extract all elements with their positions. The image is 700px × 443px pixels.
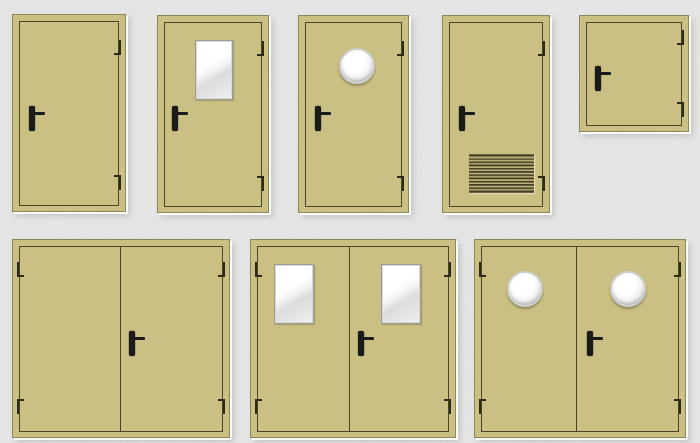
ventilation-grille: [469, 154, 534, 193]
door-hinge: [543, 41, 545, 56]
door-hinge: [402, 176, 404, 191]
door-hinge: [223, 262, 225, 277]
door-center-gap: [349, 246, 350, 432]
door-catalog: [0, 0, 700, 443]
single-door-louvered[interactable]: [442, 15, 550, 213]
door-hinge: [682, 30, 684, 45]
single-door-porthole[interactable]: [298, 15, 409, 213]
door-handle: [129, 331, 135, 356]
door-hinge: [119, 175, 121, 190]
door-hinge: [679, 262, 681, 277]
window-glazing: [195, 40, 233, 100]
porthole-window: [339, 48, 375, 84]
door-hinge: [449, 399, 451, 414]
door-leaf-outline: [481, 246, 679, 432]
window-glazing: [274, 264, 314, 324]
door-hinge: [262, 41, 264, 56]
door-hinge: [17, 262, 19, 277]
door-hinge: [479, 399, 481, 414]
door-handle: [172, 106, 178, 131]
door-hinge: [262, 176, 264, 191]
door-handle: [587, 331, 593, 356]
single-door-glazed[interactable]: [157, 15, 269, 213]
door-hinge: [479, 262, 481, 277]
window-glazing: [381, 264, 421, 324]
door-hinge: [402, 41, 404, 56]
door-hinge: [17, 399, 19, 414]
door-hinge: [255, 262, 257, 277]
double-door-glazed[interactable]: [250, 239, 456, 438]
door-handle: [315, 106, 321, 131]
door-handle: [29, 106, 35, 131]
technical-hatch[interactable]: [579, 15, 689, 132]
porthole-window: [507, 271, 543, 307]
door-hinge: [449, 262, 451, 277]
door-hinge: [119, 40, 121, 55]
door-handle: [595, 66, 601, 91]
door-center-gap: [120, 246, 121, 432]
door-leaf-outline: [19, 246, 223, 432]
door-center-gap: [576, 246, 577, 432]
door-handle: [459, 106, 465, 131]
porthole-window: [610, 271, 646, 307]
door-hinge: [255, 399, 257, 414]
door-hinge: [543, 176, 545, 191]
door-hinge: [679, 399, 681, 414]
door-grid: [0, 0, 700, 443]
door-hinge: [682, 102, 684, 117]
door-hinge: [223, 399, 225, 414]
door-handle: [358, 331, 364, 356]
double-door-porthole[interactable]: [474, 239, 686, 438]
single-door-solid[interactable]: [12, 14, 126, 212]
double-door-solid[interactable]: [12, 239, 230, 438]
